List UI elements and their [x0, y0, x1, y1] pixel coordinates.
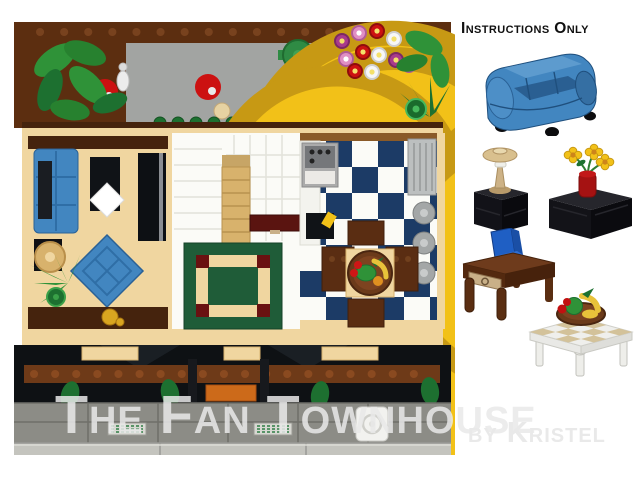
side-table-topdown — [34, 239, 65, 272]
piano — [138, 153, 166, 241]
staircase — [222, 155, 250, 245]
watermark-title: The Fan Townhouse — [55, 388, 537, 442]
fruit-bowl — [557, 288, 605, 325]
fruit-table-render — [524, 286, 638, 378]
sofa-topdown — [34, 149, 78, 233]
watermark-author: by Kristel — [468, 419, 606, 448]
page: The Fan Townhouse by Kristel Instruction… — [0, 0, 640, 480]
sideboard — [250, 215, 300, 234]
fruit-bowl-topdown — [348, 251, 392, 295]
black-counter — [306, 211, 337, 239]
kitchen — [300, 133, 445, 329]
blue-sofa-render — [474, 46, 604, 136]
white-statue — [117, 63, 129, 91]
stoop — [224, 347, 260, 360]
front-wall-living — [28, 307, 168, 329]
panel-title: Instructions Only — [461, 20, 589, 38]
side-table-lamp-render — [462, 138, 542, 238]
stoop — [322, 347, 378, 360]
red-round-piece — [195, 74, 221, 100]
stove — [302, 143, 338, 187]
window-planter-box — [24, 365, 440, 383]
dining-rug — [184, 243, 282, 329]
stoop — [82, 347, 138, 360]
fridge — [408, 139, 436, 195]
